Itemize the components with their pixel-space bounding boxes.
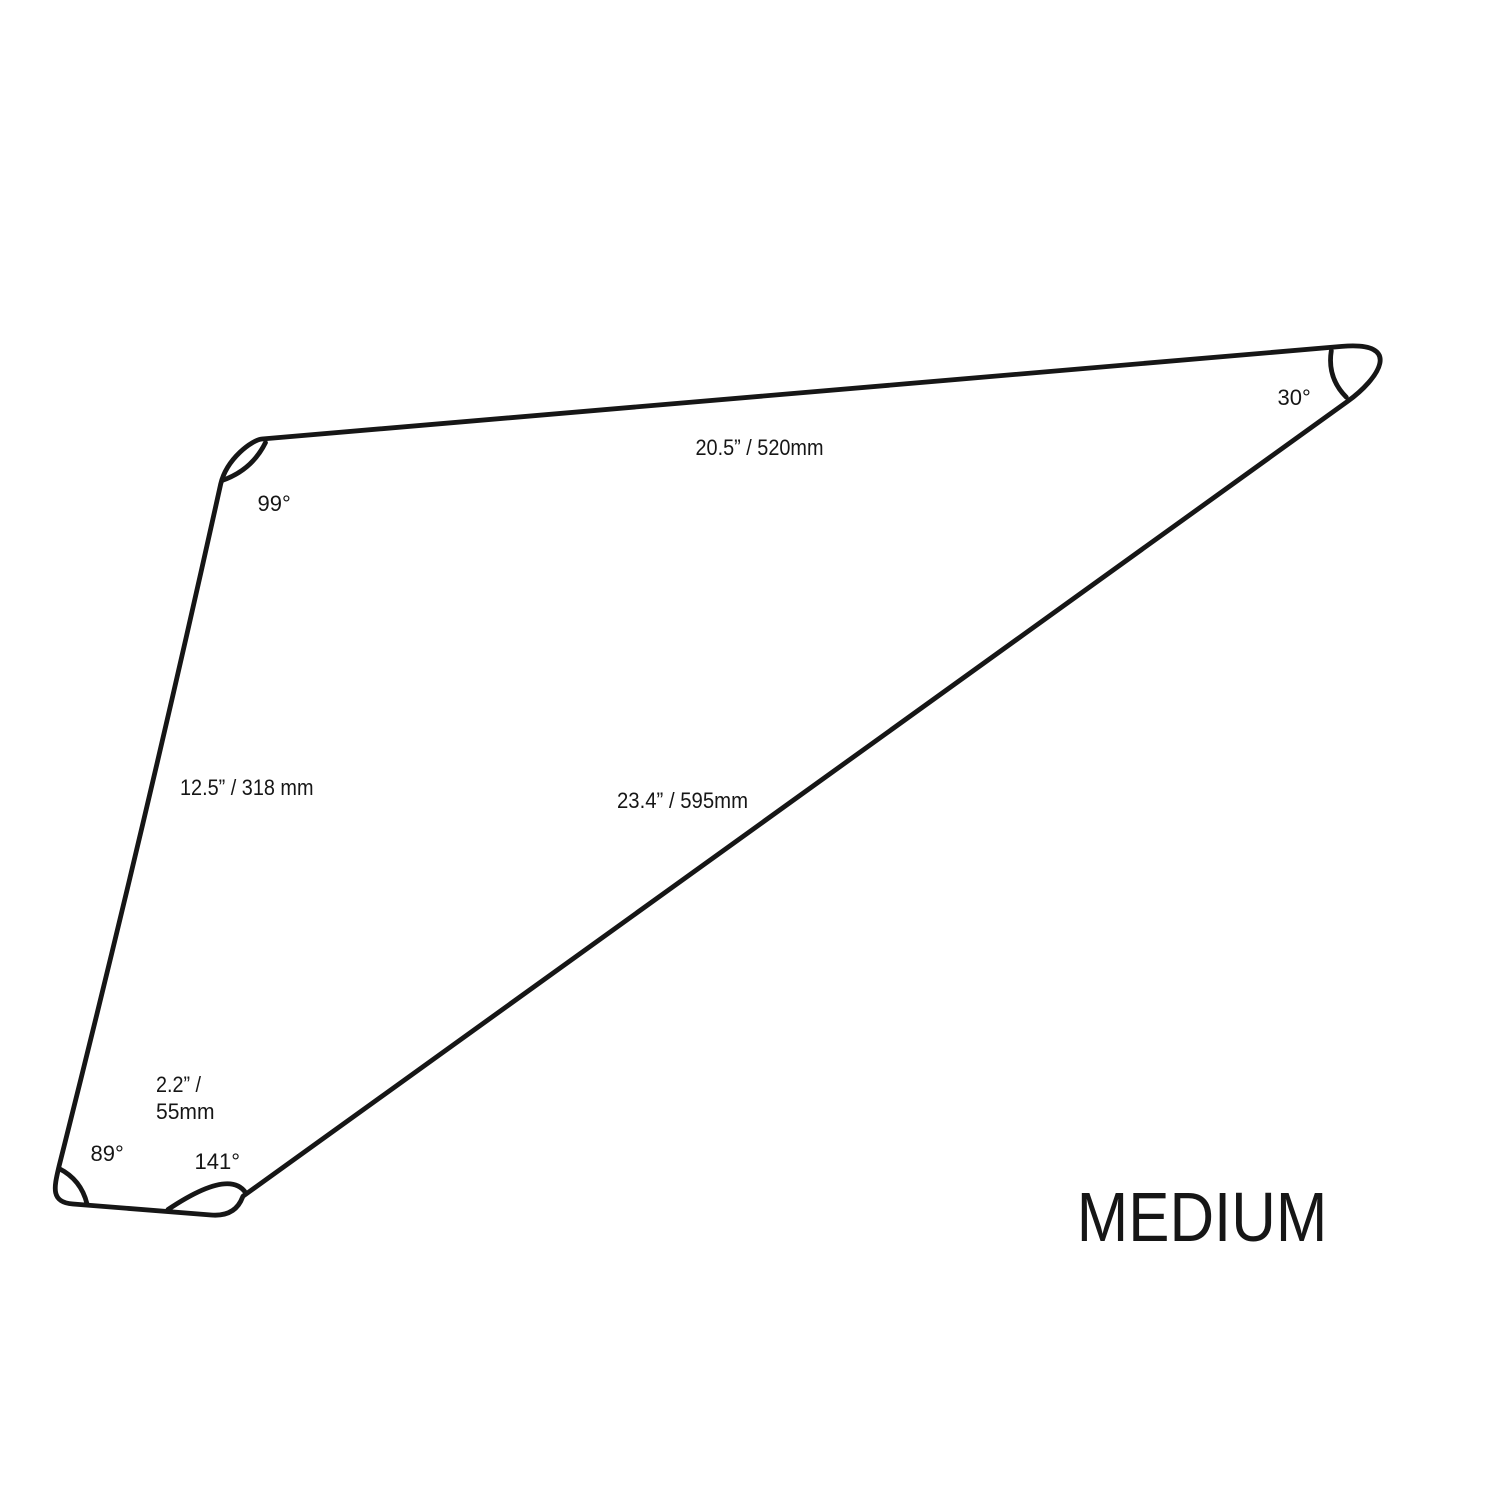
svg-text:89°: 89° — [91, 1141, 124, 1166]
svg-text:99°: 99° — [258, 491, 291, 516]
svg-text:23.4” / 595mm: 23.4” / 595mm — [617, 788, 748, 813]
svg-text:2.2” /: 2.2” / — [156, 1072, 202, 1097]
svg-text:30°: 30° — [1278, 385, 1311, 410]
svg-text:20.5” / 520mm: 20.5” / 520mm — [696, 435, 824, 460]
svg-text:55mm: 55mm — [156, 1099, 215, 1124]
svg-text:MEDIUM: MEDIUM — [1077, 1178, 1328, 1256]
svg-text:141°: 141° — [195, 1149, 241, 1174]
svg-text:12.5” / 318 mm: 12.5” / 318 mm — [180, 775, 314, 800]
